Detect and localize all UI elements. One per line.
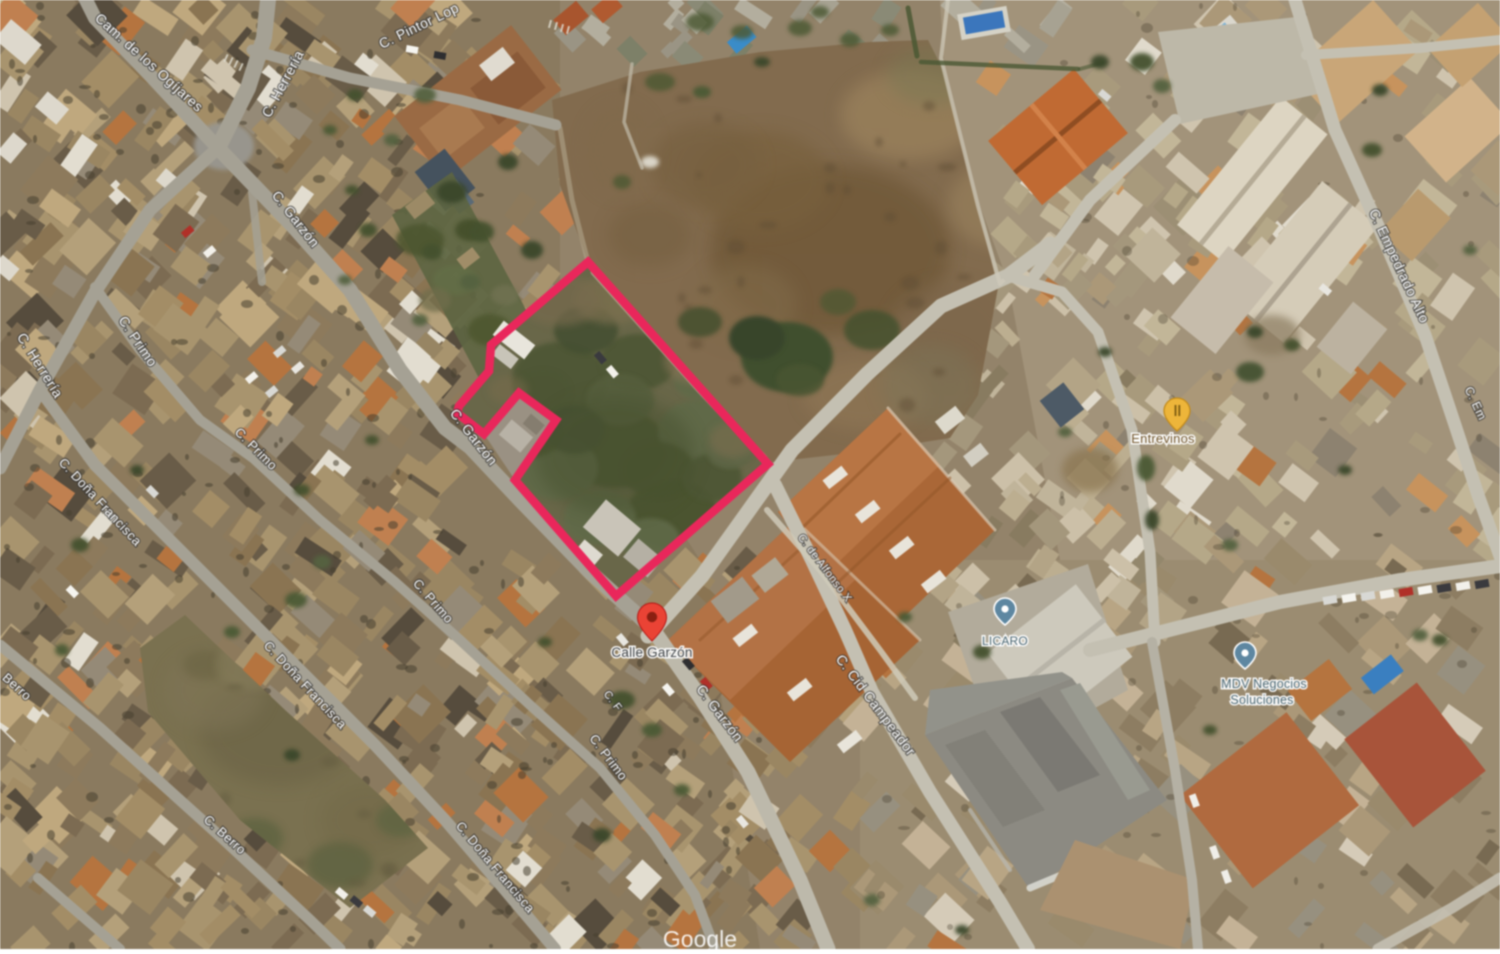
svg-text:Entrevinos: Entrevinos <box>1131 431 1195 446</box>
svg-text:Google: Google <box>663 926 737 949</box>
svg-text:LICARO: LICARO <box>982 634 1028 648</box>
svg-text:Calle Garzón: Calle Garzón <box>611 645 692 660</box>
svg-text:Soluciones: Soluciones <box>1230 693 1293 707</box>
svg-text:MDV Negocios: MDV Negocios <box>1221 677 1307 691</box>
